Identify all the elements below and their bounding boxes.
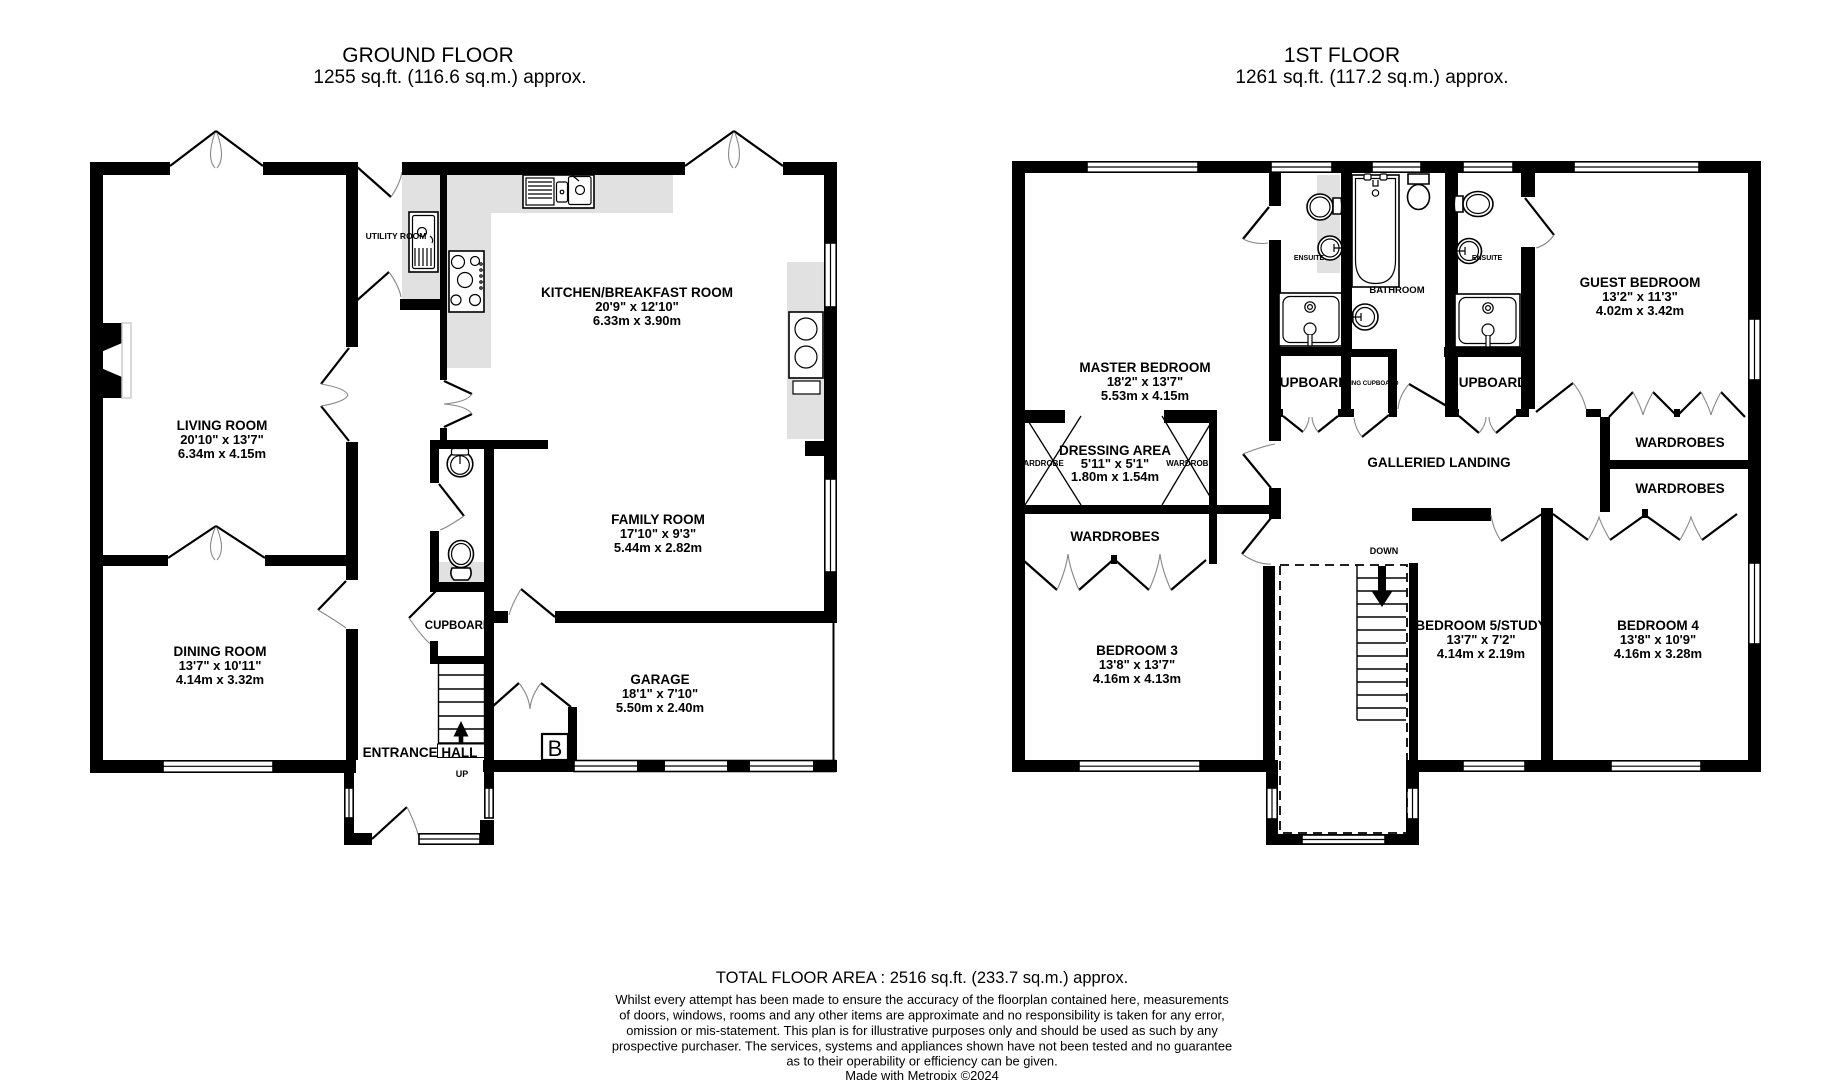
svg-text:as to their operability or eff: as to their operability or efficiency ca… — [786, 1054, 1057, 1069]
svg-text:5.50m x 2.40m: 5.50m x 2.40m — [616, 700, 704, 715]
svg-text:LIVING ROOM: LIVING ROOM — [177, 418, 268, 433]
svg-text:4.14m x 3.32m: 4.14m x 3.32m — [176, 672, 264, 687]
svg-text:13'7" x 7'2": 13'7" x 7'2" — [1446, 632, 1515, 647]
svg-text:WARDROBE: WARDROBE — [1016, 459, 1064, 468]
svg-text:CUPBOARD: CUPBOARD — [425, 620, 491, 632]
svg-text:6.33m x 3.90m: 6.33m x 3.90m — [593, 313, 681, 328]
svg-text:4.16m x 4.13m: 4.16m x 4.13m — [1093, 671, 1181, 686]
svg-text:GARAGE: GARAGE — [630, 672, 689, 687]
svg-text:4.14m x 2.19m: 4.14m x 2.19m — [1437, 646, 1525, 661]
svg-text:B: B — [548, 736, 563, 761]
svg-text:13'8" x 10'9": 13'8" x 10'9" — [1620, 632, 1696, 647]
svg-text:BEDROOM 4: BEDROOM 4 — [1617, 618, 1699, 633]
svg-text:13'8" x 13'7": 13'8" x 13'7" — [1099, 657, 1175, 672]
svg-text:GALLERIED LANDING: GALLERIED LANDING — [1367, 455, 1510, 470]
svg-text:Made with Metropix ©2024: Made with Metropix ©2024 — [845, 1068, 999, 1080]
svg-text:TOTAL FLOOR AREA : 2516 sq.ft.: TOTAL FLOOR AREA : 2516 sq.ft. (233.7 sq… — [716, 969, 1128, 987]
svg-text:WARDROBE: WARDROBE — [1166, 459, 1214, 468]
svg-text:1ST FLOOR: 1ST FLOOR — [1284, 44, 1400, 67]
svg-text:BATHROOM: BATHROOM — [1369, 285, 1424, 296]
svg-text:BEDROOM 3: BEDROOM 3 — [1096, 643, 1178, 658]
svg-text:17'10" x 9'3": 17'10" x 9'3" — [620, 526, 696, 541]
svg-text:1261 sq.ft. (117.2 sq.m.) appr: 1261 sq.ft. (117.2 sq.m.) approx. — [1235, 67, 1508, 88]
svg-text:WARDROBES: WARDROBES — [1635, 481, 1724, 496]
svg-text:18'1" x 7'10": 18'1" x 7'10" — [622, 686, 698, 701]
svg-text:FAMILY ROOM: FAMILY ROOM — [611, 512, 705, 527]
svg-text:4.16m x 3.28m: 4.16m x 3.28m — [1614, 646, 1702, 661]
svg-text:KITCHEN/BREAKFAST ROOM: KITCHEN/BREAKFAST ROOM — [541, 285, 733, 300]
svg-text:ENTRANCE HALL: ENTRANCE HALL — [363, 745, 478, 760]
svg-text:1.80m x 1.54m: 1.80m x 1.54m — [1071, 469, 1159, 484]
svg-text:BEDROOM 5/STUDY: BEDROOM 5/STUDY — [1415, 618, 1546, 633]
svg-text:6.34m x 4.15m: 6.34m x 4.15m — [178, 446, 266, 461]
svg-text:13'7" x 10'11": 13'7" x 10'11" — [179, 658, 262, 673]
svg-text:GROUND FLOOR: GROUND FLOOR — [342, 44, 514, 67]
svg-text:UTILITY ROOM: UTILITY ROOM — [366, 231, 427, 241]
svg-text:18'2" x 13'7": 18'2" x 13'7" — [1107, 374, 1183, 389]
svg-text:ENSUITE: ENSUITE — [1294, 255, 1325, 262]
svg-text:MASTER BEDROOM: MASTER BEDROOM — [1079, 360, 1210, 375]
svg-text:CUPBOARD: CUPBOARD — [1449, 375, 1527, 390]
svg-text:UP: UP — [456, 769, 469, 779]
svg-text:Whilst every attempt has been: Whilst every attempt has been made to en… — [615, 992, 1228, 1007]
svg-text:WARDROBES: WARDROBES — [1635, 435, 1724, 450]
svg-text:of doors, windows, rooms and a: of doors, windows, rooms and any other i… — [619, 1008, 1224, 1023]
svg-text:13'2" x 11'3": 13'2" x 11'3" — [1602, 289, 1678, 304]
svg-text:5.44m x 2.82m: 5.44m x 2.82m — [614, 540, 702, 555]
svg-text:20'9" x 12'10": 20'9" x 12'10" — [595, 299, 679, 314]
svg-text:20'10" x 13'7": 20'10" x 13'7" — [180, 432, 264, 447]
svg-text:4.02m x 3.42m: 4.02m x 3.42m — [1596, 303, 1684, 318]
svg-text:ENSUITE: ENSUITE — [1472, 255, 1503, 262]
svg-text:omission or mis-statement. Thi: omission or mis-statement. This plan is … — [626, 1023, 1218, 1038]
svg-text:DOWN: DOWN — [1370, 546, 1399, 556]
svg-text:WARDROBES: WARDROBES — [1070, 529, 1159, 544]
svg-text:5.53m x 4.15m: 5.53m x 4.15m — [1101, 388, 1189, 403]
svg-text:DINING ROOM: DINING ROOM — [174, 644, 267, 659]
svg-text:prospective purchaser. The ser: prospective purchaser. The services, sys… — [612, 1039, 1232, 1054]
svg-text:GUEST BEDROOM: GUEST BEDROOM — [1580, 275, 1701, 290]
svg-text:CUPBOARD: CUPBOARD — [1270, 375, 1348, 390]
svg-text:1255 sq.ft. (116.6 sq.m.) appr: 1255 sq.ft. (116.6 sq.m.) approx. — [313, 67, 586, 88]
